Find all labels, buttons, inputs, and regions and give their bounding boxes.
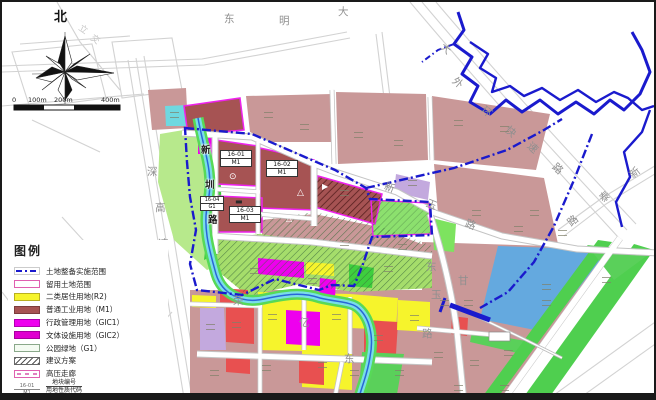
legend-item-parcel-code: 16-01 M1 地块编号 用地性质代码 [14,380,168,393]
legend-item-gic1: 行政管理用地（GIC1） [14,316,168,329]
parcel-code-mark [354,132,363,138]
road-label: 明 [279,16,290,27]
road-label: 东 [426,262,437,273]
parcel-symbol: △ [297,189,304,198]
parcel-symbol: ⊙ [229,173,237,182]
parcel-symbol: ▶ [322,183,328,191]
legend-item-label: 土地整备实施范围 [46,266,106,277]
parcel-code-mark [308,278,317,284]
road-label: 东 [224,14,235,25]
road-label: 深 [147,167,158,178]
north-label: 北 [54,6,67,25]
legend-item-label: 留用土地范围 [46,279,91,290]
parcel-code-mark [340,190,349,196]
parcel-code-mark [264,112,273,118]
parcel-code-mark [410,315,419,321]
parcel-code-mark [504,350,513,356]
parcel-code-mark [232,322,241,328]
parcel-code-mark [268,314,277,320]
parcel-code-mark [170,112,179,118]
parcel-code-label: 地块编号 用地性质代码 [46,379,82,394]
scale-tick: 100m [28,96,47,104]
road-label: 甘 [458,276,469,287]
scale-tick: 200m [54,96,73,104]
parcel-code-mark [530,210,539,216]
planning-map-image: 北 东明大大外环快速路新泰路新玉路深高速新圳路荣亿东东甘玉路立交16-01M11… [0,0,656,400]
road-label: 新 [201,146,211,156]
parcel-code-mark [454,385,463,391]
parcel-code-mark [454,120,463,126]
legend-item-retained: 留用土地范围 [14,278,168,291]
scale-tick: 400m [101,96,120,104]
parcel-code-mark [470,360,479,366]
gic1-swatch-icon [14,319,40,327]
map-border-bottom [2,393,654,398]
legend-title: 图例 [14,242,168,259]
parcel-label-16-02: 16-02M1 [266,160,298,177]
parcel-code-mark [374,335,383,341]
legend-item-plan: 建议方案 [14,355,168,368]
parcel-code-mark [542,300,551,306]
parcel-code-mark [340,240,349,246]
plan-swatch-icon [14,357,40,365]
parcel-code-mark [542,284,551,290]
parcel-symbol: △ [286,215,292,223]
road-label: 大 [338,7,349,18]
parcel-code-mark [395,370,404,376]
road-label: 路 [208,216,218,226]
parcel-code-mark [300,124,309,130]
m1-swatch-icon [14,306,40,314]
parcel-label-16-01: 16-01M1 [220,150,252,167]
legend-item-label: 二类居住用地(R2) [46,291,107,302]
legend-item-label: 普通工业用地（M1） [46,304,117,315]
road-label: 玉 [431,290,442,301]
hv-swatch-icon [14,370,40,378]
parcel-code-mark [500,126,509,132]
legend-item-r2: 二类居住用地(R2) [14,291,168,304]
parcel-code-mark [558,230,567,236]
parcel-code-mark [318,362,327,368]
parcel-code-mark [500,385,509,391]
scale-bar [14,105,120,110]
legend-item-label: 公园绿地（G1） [46,343,102,354]
parcel-code-mark [332,314,341,320]
legend-item-gic2: 文体设施用地（GIC2） [14,329,168,342]
parcel-symbol: ▬ [235,198,243,206]
parcel-code-mark [408,180,417,186]
road-label: 东 [344,354,355,365]
legend-item-label: 行政管理用地（GIC1） [46,317,124,328]
road-label: 高 [155,203,166,214]
parcel-code-mark [434,352,443,358]
legend: 图例 土地整备实施范围留用土地范围二类居住用地(R2)普通工业用地（M1）行政管… [8,240,168,393]
boundary-swatch-icon [14,267,40,275]
legend-item-park: 公园绿地（G1） [14,342,168,355]
legend-item-label: 文体设施用地（GIC2） [46,330,124,341]
parcel-label-16-03: 16-03M1 [229,206,261,223]
parcel-code-mark [472,210,481,216]
retained-swatch-icon [14,280,40,288]
parcel-code-mark [440,300,449,306]
parcel-code-mark [602,277,611,283]
parcel-label-16-04: 16-04G1 [200,196,224,211]
r2-swatch-icon [14,293,40,301]
scale-tick: 0 [12,96,16,104]
park-swatch-icon [14,344,40,352]
road-label: 亿 [299,318,310,329]
parcel-code-mark [464,300,473,306]
road-label: 荣 [233,296,244,307]
legend-item-label: 建议方案 [46,355,76,366]
parcel-code-mark [262,365,271,371]
road-label: 圳 [205,181,215,191]
parcel-code-mark [398,244,407,250]
parcel-code-mark [210,370,219,376]
legend-item-label: 高压走廊 [46,368,76,379]
gic2-swatch-icon [14,331,40,339]
parcel-code-mark [250,268,259,274]
legend-item-hv: 高压走廊 [14,367,168,380]
parcel-code-mark [206,324,215,330]
parcel-code-mark [394,140,403,146]
parcel-code-mark [514,226,523,232]
road-label: 路 [422,329,433,340]
legend-items: 土地整备实施范围留用土地范围二类居住用地(R2)普通工业用地（M1）行政管理用地… [14,265,168,380]
parcel-code-example: 16-01 M1 [14,383,40,391]
parcel-code-mark [350,370,359,376]
legend-item-boundary: 土地整备实施范围 [14,265,168,278]
legend-item-m1: 普通工业用地（M1） [14,303,168,316]
parcel-code-mark [384,266,393,272]
